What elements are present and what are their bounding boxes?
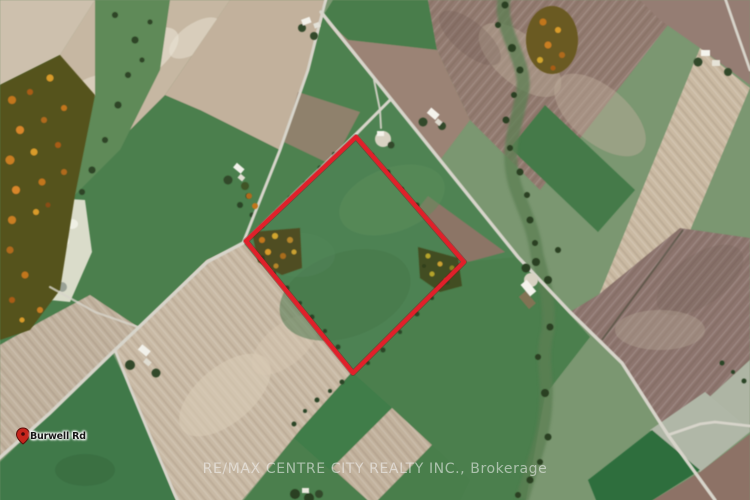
road-label: Burwell Rd — [30, 431, 86, 442]
fields-layer — [0, 0, 750, 500]
brokerage-watermark: RE/MAX CENTRE CITY REALTY INC., Brokerag… — [203, 461, 548, 477]
satellite-imagery — [0, 0, 750, 500]
aerial-map: Burwell Rd RE/MAX CENTRE CITY REALTY INC… — [0, 0, 750, 500]
